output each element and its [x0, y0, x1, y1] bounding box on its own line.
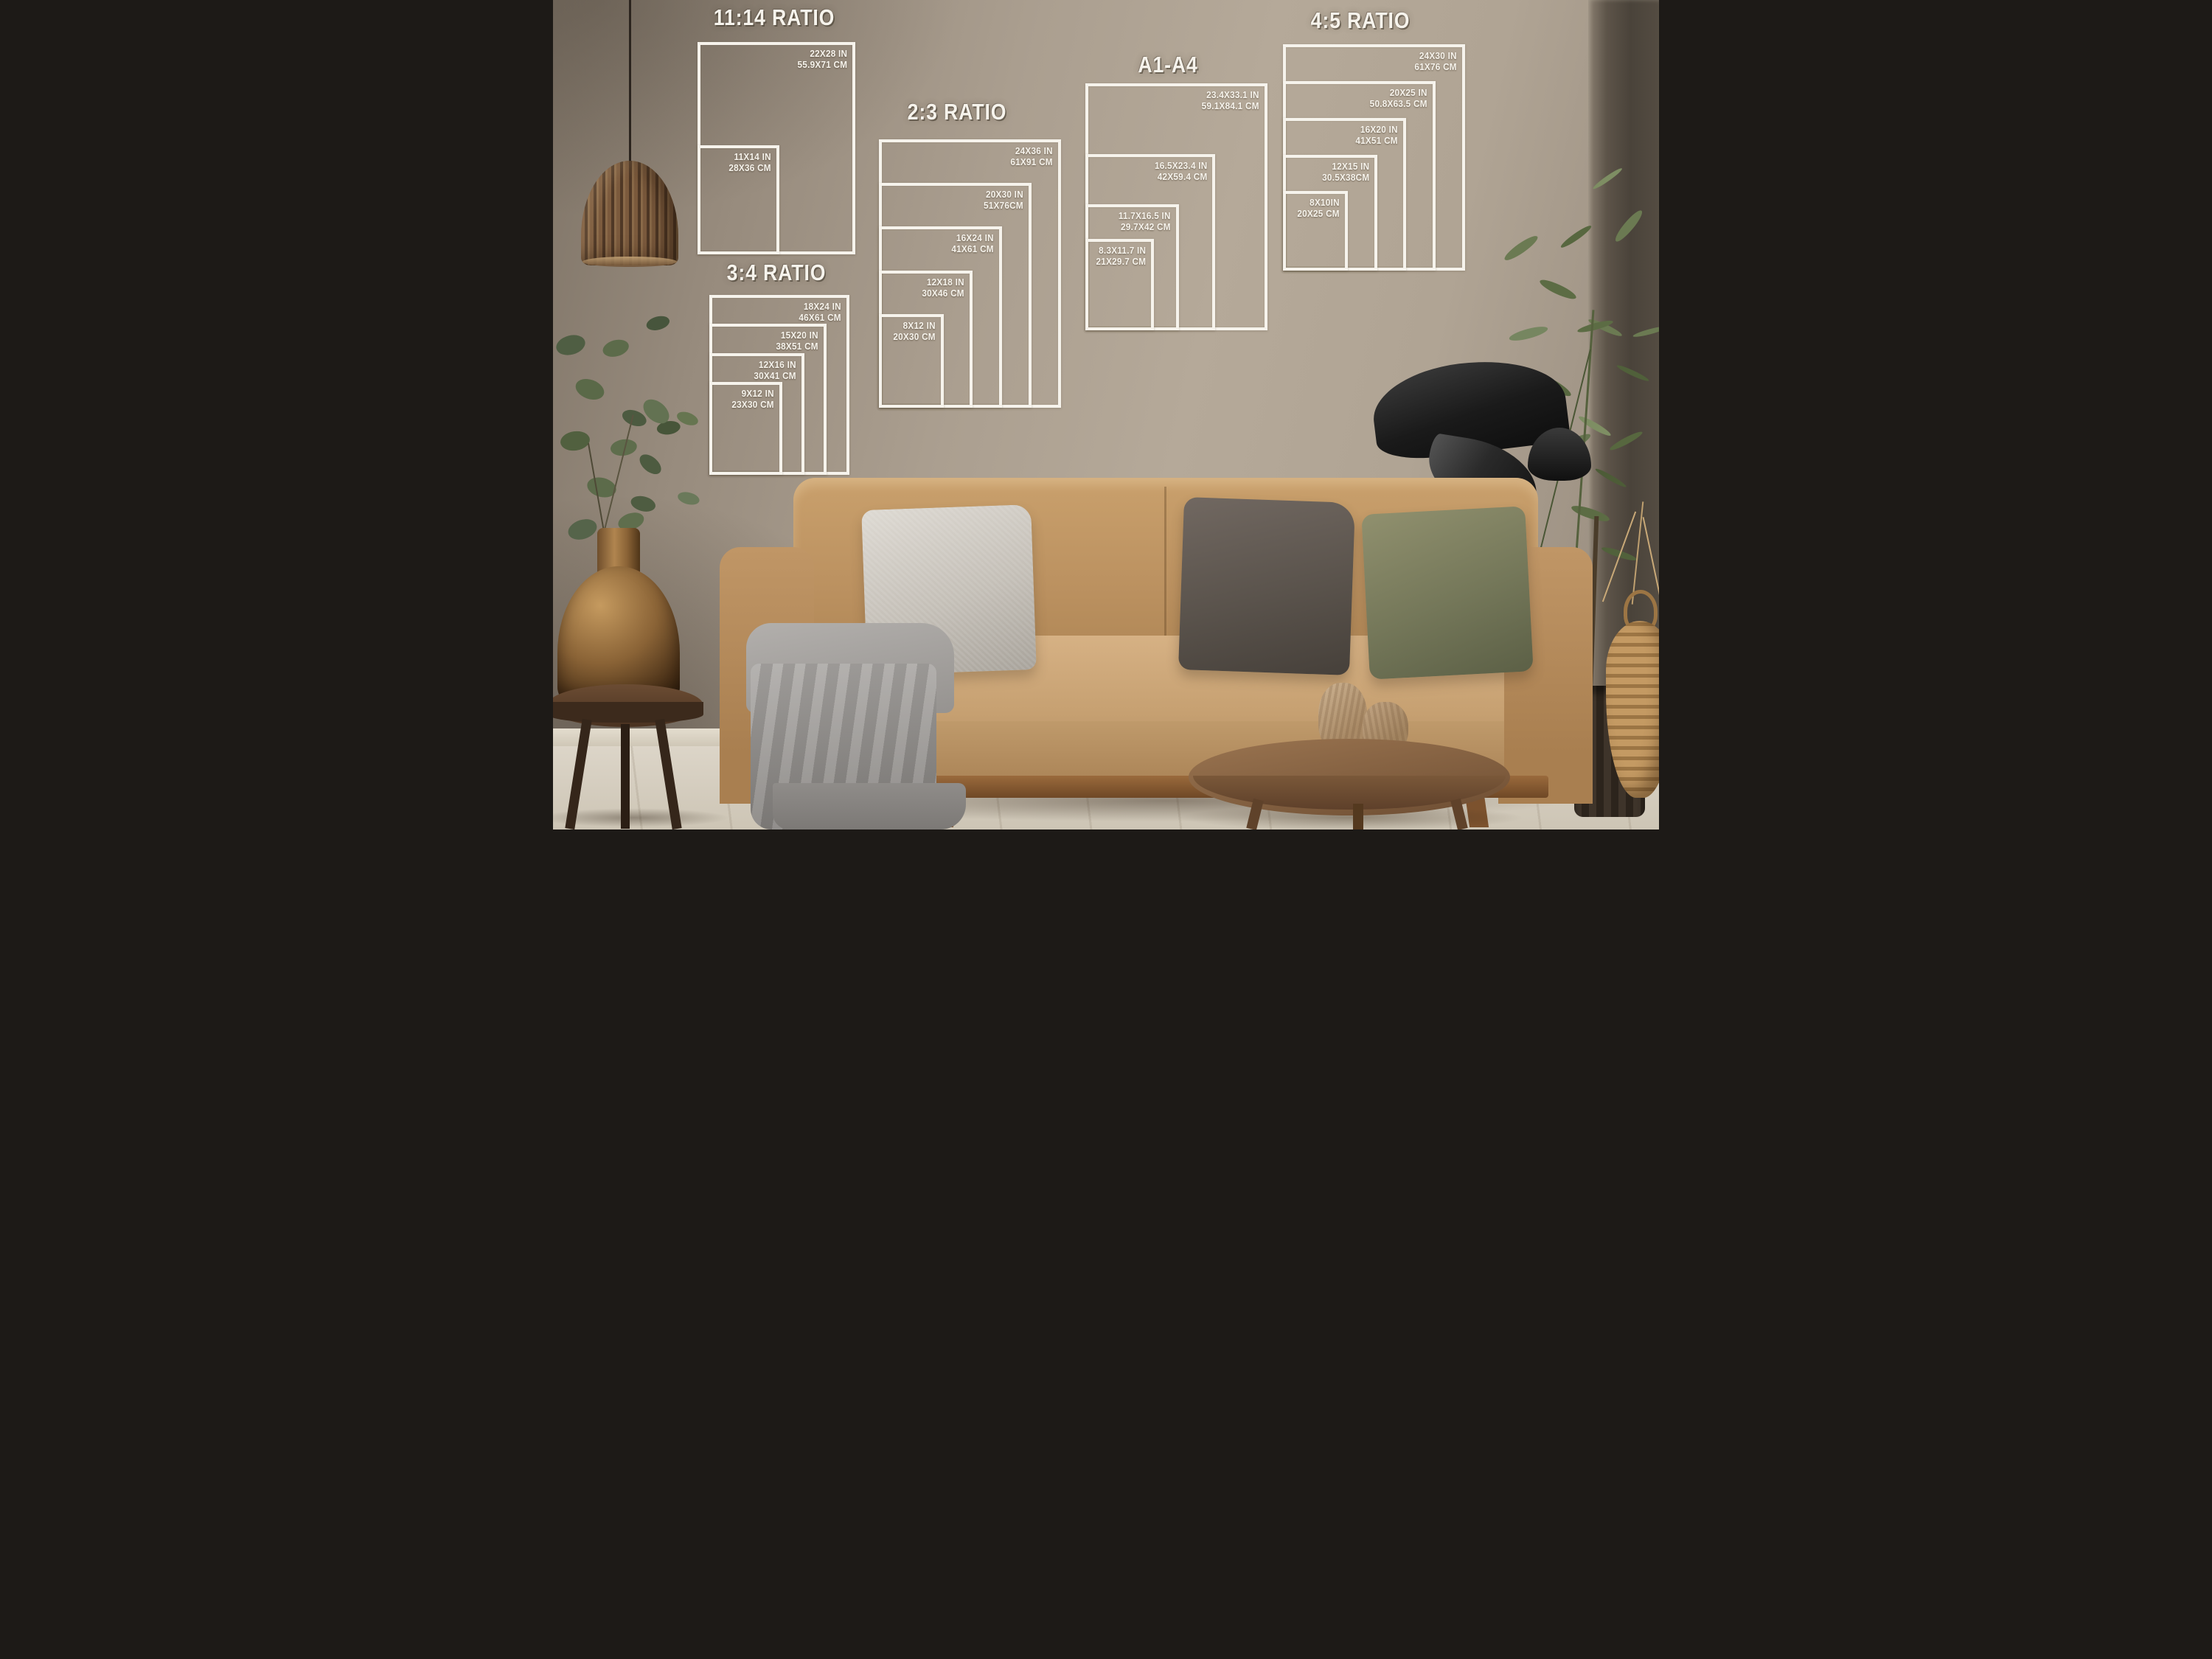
pendant-cord — [629, 0, 631, 165]
stool-leg — [621, 724, 630, 829]
pendant-rim — [582, 257, 677, 267]
pillow-dark-gray — [1178, 497, 1355, 675]
coffee-table-leg — [1353, 804, 1363, 829]
stool-edge — [553, 702, 703, 723]
living-room-mockup: 11:14 RATIO 22X28 IN55.9X71 CM 11X14 IN2… — [553, 0, 1659, 829]
blanket-floor-spill — [773, 783, 966, 829]
pillow-olive — [1361, 506, 1533, 679]
